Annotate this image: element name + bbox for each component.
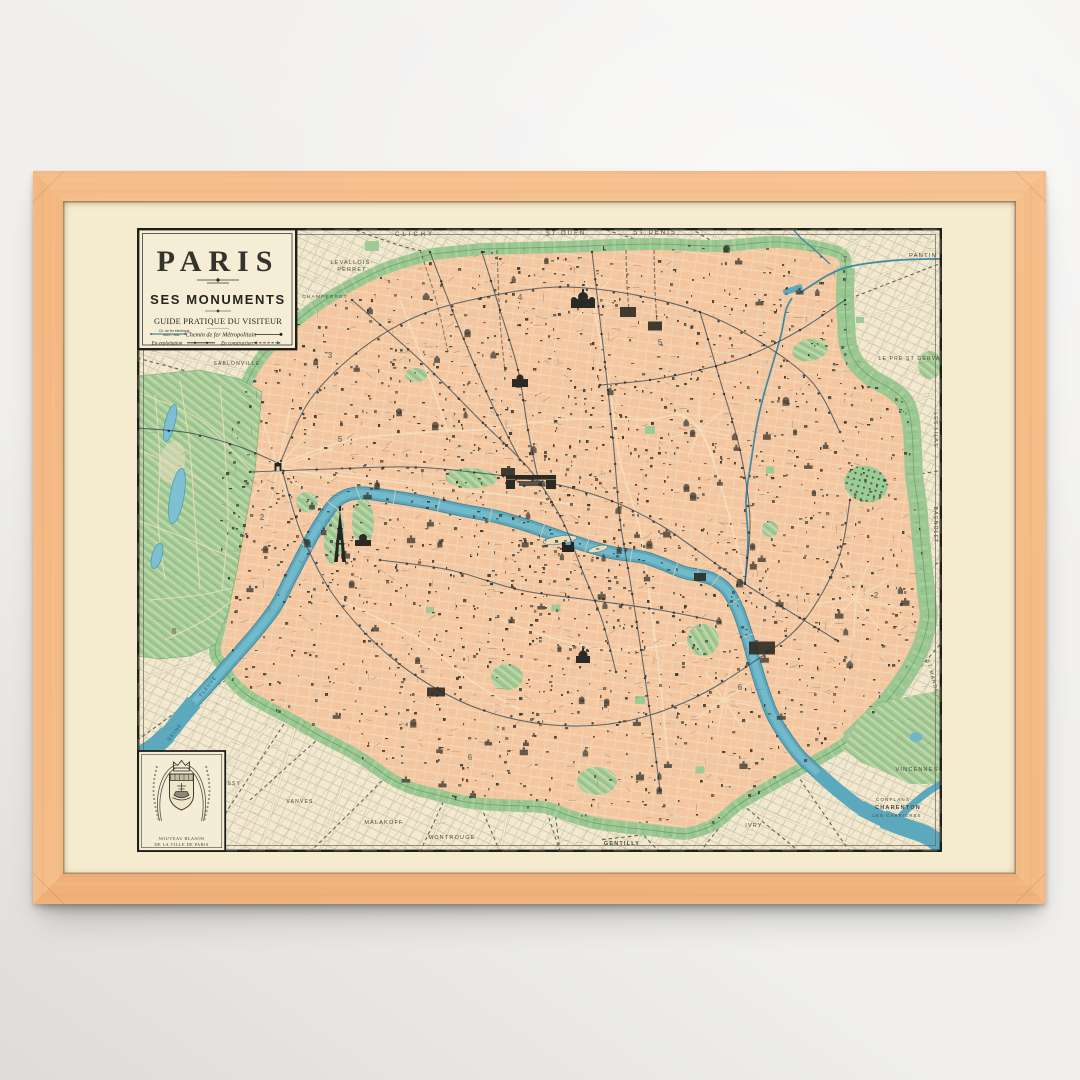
svg-text:2: 2 [874, 590, 879, 600]
svg-text:CHARENTON: CHARENTON [875, 805, 921, 811]
svg-text:ISSY: ISSY [225, 781, 241, 787]
svg-text:CHAMPERRET: CHAMPERRET [302, 294, 348, 300]
svg-text:VINCENNES: VINCENNES [896, 767, 939, 773]
svg-text:MONTROUGE: MONTROUGE [428, 835, 475, 841]
svg-text:5: 5 [338, 434, 343, 444]
svg-text:S̲T DENIS: S̲T DENIS [633, 230, 677, 236]
svg-text:SES MONUMENTS: SES MONUMENTS [150, 292, 286, 307]
svg-text:6: 6 [468, 752, 473, 762]
svg-text:LES CARRIERES: LES CARRIERES [872, 813, 921, 818]
svg-text:7: 7 [843, 254, 848, 264]
svg-text:En exploitation: En exploitation [151, 341, 183, 346]
svg-text:6: 6 [738, 682, 743, 692]
svg-text:DE LA VILLE DE PARIS: DE LA VILLE DE PARIS [154, 842, 209, 847]
svg-text:GUIDE PRATIQUE DU VISITEUR: GUIDE PRATIQUE DU VISITEUR [154, 317, 282, 326]
svg-text:Chemin de fer Métropolitain: Chemin de fer Métropolitain [186, 331, 257, 338]
svg-text:SABLONVILLE: SABLONVILLE [213, 361, 260, 367]
svg-text:8: 8 [172, 626, 177, 636]
svg-text:IVRY: IVRY [745, 823, 763, 829]
svg-text:PERRET: PERRET [337, 267, 367, 273]
svg-text:3: 3 [328, 350, 333, 360]
svg-text:LES LILAS: LES LILAS [932, 412, 938, 447]
svg-text:4: 4 [518, 292, 523, 302]
svg-text:CONFLANS: CONFLANS [876, 797, 910, 802]
svg-text:CLICHY: CLICHY [395, 232, 435, 238]
svg-text:S̲T OUEN: S̲T OUEN [546, 231, 587, 237]
svg-text:5: 5 [658, 337, 663, 347]
svg-text:NOUVEAU BLASON: NOUVEAU BLASON [159, 836, 205, 841]
svg-text:GENTILLY: GENTILLY [604, 841, 640, 847]
svg-text:LEVALLOIS-: LEVALLOIS- [330, 260, 373, 266]
svg-text:En construction: En construction [220, 341, 253, 346]
svg-text:VANVES: VANVES [286, 799, 313, 805]
svg-text:PARIS: PARIS [157, 245, 280, 278]
svg-text:MALAKOFF: MALAKOFF [364, 820, 403, 826]
svg-text:LE PRE S̲T GERVAIS: LE PRE S̲T GERVAIS [878, 356, 942, 362]
svg-text:BAGNOLET: BAGNOLET [932, 507, 938, 544]
svg-text:2: 2 [260, 512, 265, 522]
svg-text:PANTIN: PANTIN [909, 253, 937, 259]
svg-text:Nord - Sud: Nord - Sud [163, 333, 180, 337]
